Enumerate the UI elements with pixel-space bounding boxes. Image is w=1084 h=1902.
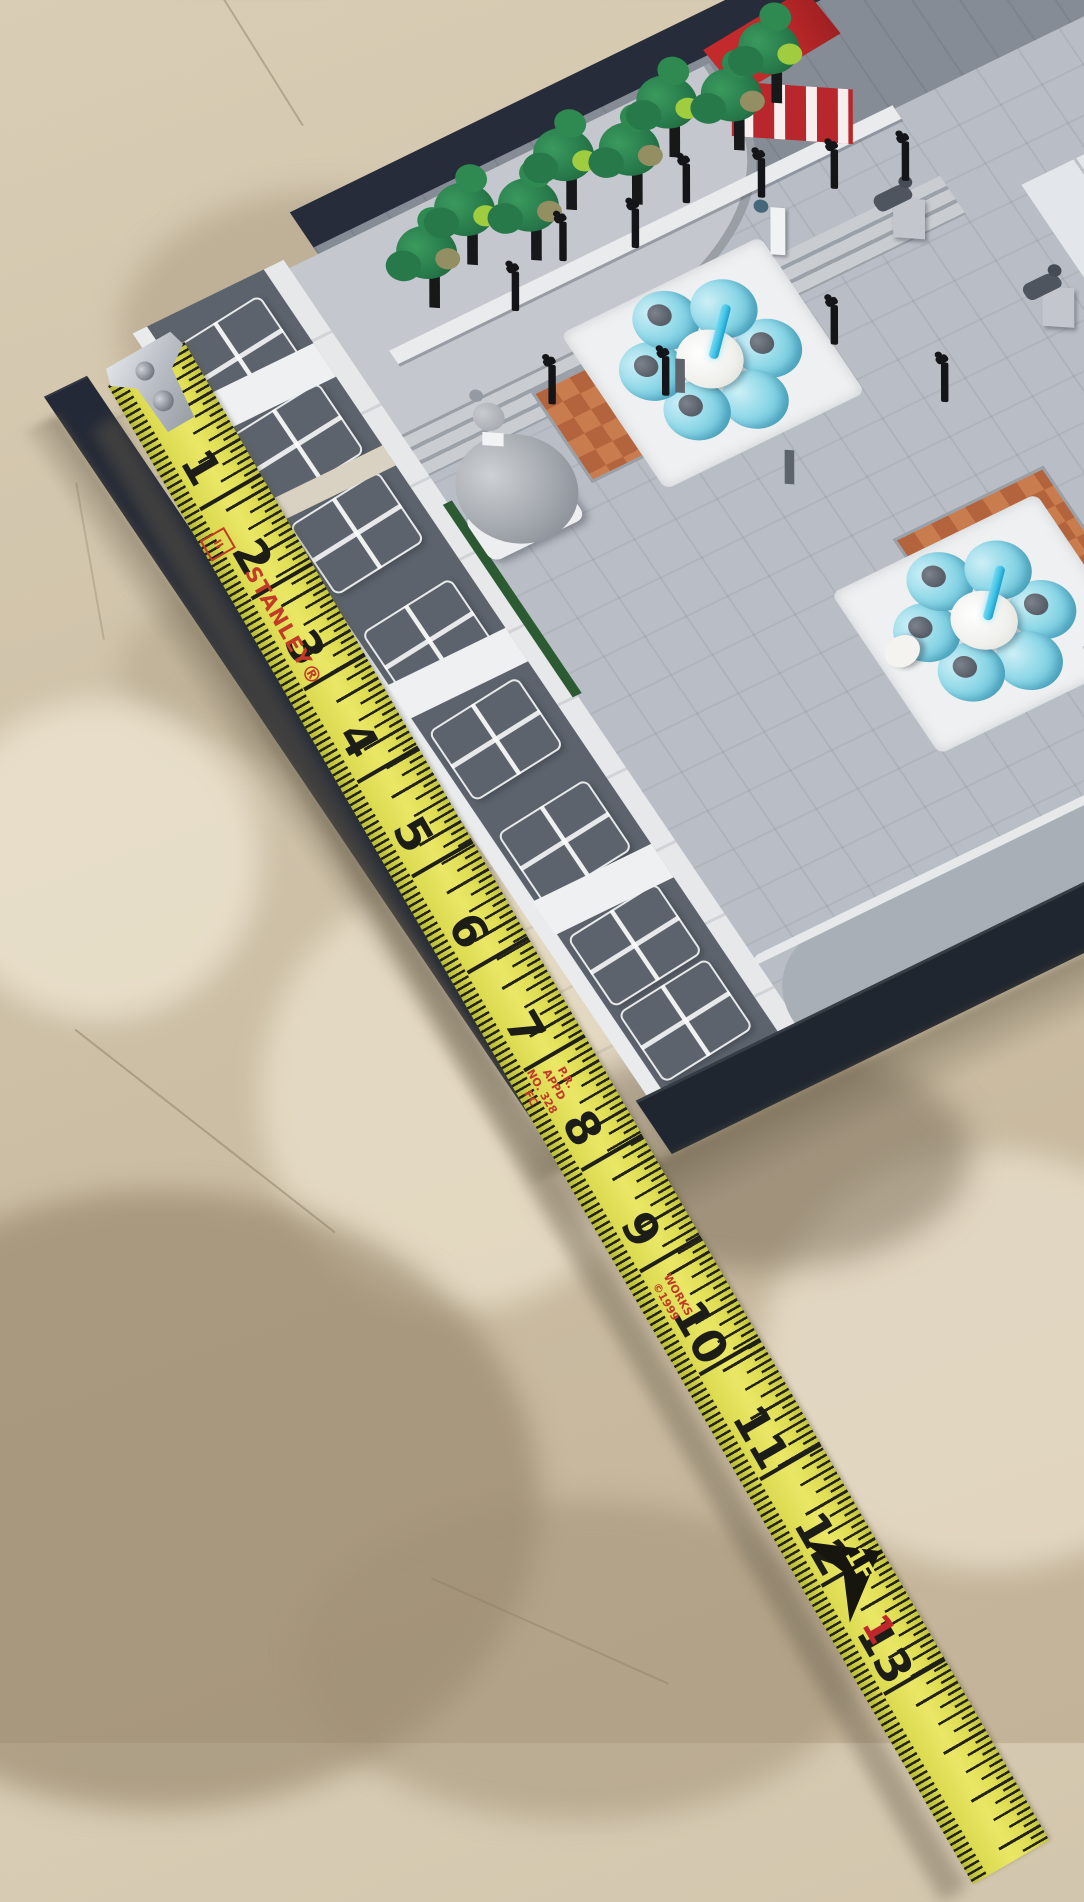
floor-dark-patch: [300, 1500, 860, 1820]
lamppost-pole: [758, 158, 766, 198]
lamppost-pole: [831, 305, 839, 345]
dome-cupola-collar: [482, 432, 503, 447]
floor-crack: [196, 0, 304, 126]
lamppost-pole: [512, 271, 520, 311]
lamppost-pole: [941, 362, 949, 402]
lamppost-pole: [632, 208, 640, 248]
photo-lego-model-tape-measure: { "tape": { "brand": "STANLEY®", "accura…: [0, 0, 1084, 1743]
lamppost-pole: [831, 149, 839, 189]
lamppost-pole: [662, 356, 670, 396]
lamppost-pole: [902, 141, 910, 181]
lamppost-pole: [683, 163, 691, 203]
statue-post: [675, 358, 685, 393]
lamppost-pole: [559, 221, 567, 261]
lamppost-pole: [548, 365, 556, 405]
statue-pillar: [770, 207, 785, 255]
statue-post: [785, 450, 795, 485]
